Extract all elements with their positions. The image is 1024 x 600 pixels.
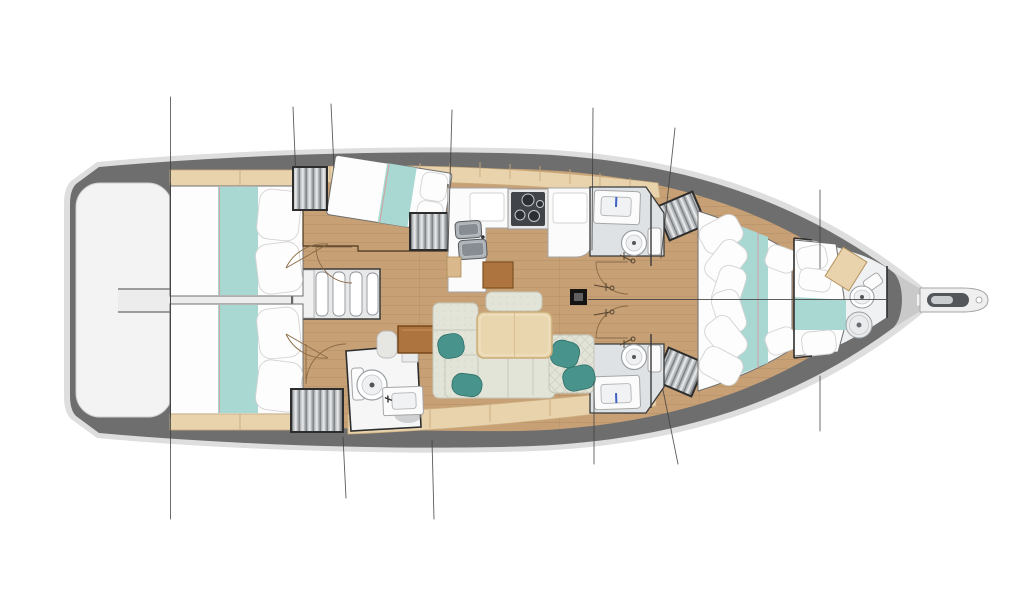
toilet <box>622 345 662 373</box>
pillow <box>256 306 303 360</box>
nav-station <box>377 326 438 358</box>
burner <box>522 194 534 206</box>
bed-teal-runner <box>218 305 258 413</box>
nav-seat <box>377 331 397 358</box>
burner <box>537 201 544 208</box>
toilet-drain <box>632 241 636 245</box>
toilet-drain <box>370 383 375 388</box>
louver-locker <box>410 213 448 250</box>
pillow <box>419 171 449 203</box>
galley-step <box>447 257 461 277</box>
washbasin-unit <box>383 386 424 415</box>
sink-bowl-inner <box>461 242 484 257</box>
louver-locker <box>291 389 343 432</box>
toilet-drain <box>632 355 636 359</box>
bowsprit-end-fitting <box>976 297 982 303</box>
toilet-tank <box>648 345 661 372</box>
salon-bench-texture <box>486 292 542 311</box>
stair-step <box>316 272 328 316</box>
stove <box>508 189 548 229</box>
basin <box>392 393 417 410</box>
counter-door-panel <box>553 193 587 223</box>
yacht-floor-plan <box>0 0 1024 600</box>
head-forward-starboard <box>590 344 664 413</box>
floor-hatch <box>483 262 513 288</box>
anchor-roller <box>931 296 953 304</box>
forepeak-shower <box>846 312 872 338</box>
stair-step <box>350 272 362 316</box>
head-forward-port <box>590 187 664 256</box>
burner <box>515 210 525 220</box>
burner <box>529 211 540 222</box>
pillow <box>801 329 837 356</box>
stair-step <box>367 273 378 315</box>
footboard-shelf <box>170 414 303 430</box>
washbasin-unit <box>593 375 640 410</box>
bed-teal-runner <box>218 187 258 295</box>
toilet-drain <box>860 295 864 299</box>
aft-cabin-starboard <box>170 304 304 430</box>
counter-door-panel <box>470 193 504 221</box>
yacht-floor-plan-page <box>0 0 1024 600</box>
mast-core <box>574 293 583 301</box>
pillow <box>254 241 304 296</box>
companionway-stairs <box>292 269 380 319</box>
headboard-shelf <box>170 170 303 186</box>
louver-locker <box>293 167 327 210</box>
pillow <box>798 267 833 293</box>
berth-teal-blanket <box>794 297 846 330</box>
shower-drain <box>857 323 862 328</box>
toilet-tank <box>648 228 661 255</box>
mast <box>570 289 587 305</box>
toilet <box>622 228 662 256</box>
salon-table <box>477 312 552 358</box>
aft-cabin-port <box>170 170 304 296</box>
sink-bowl-inner <box>458 223 479 235</box>
bowsprit <box>920 288 988 312</box>
washbasin-unit <box>593 190 640 225</box>
